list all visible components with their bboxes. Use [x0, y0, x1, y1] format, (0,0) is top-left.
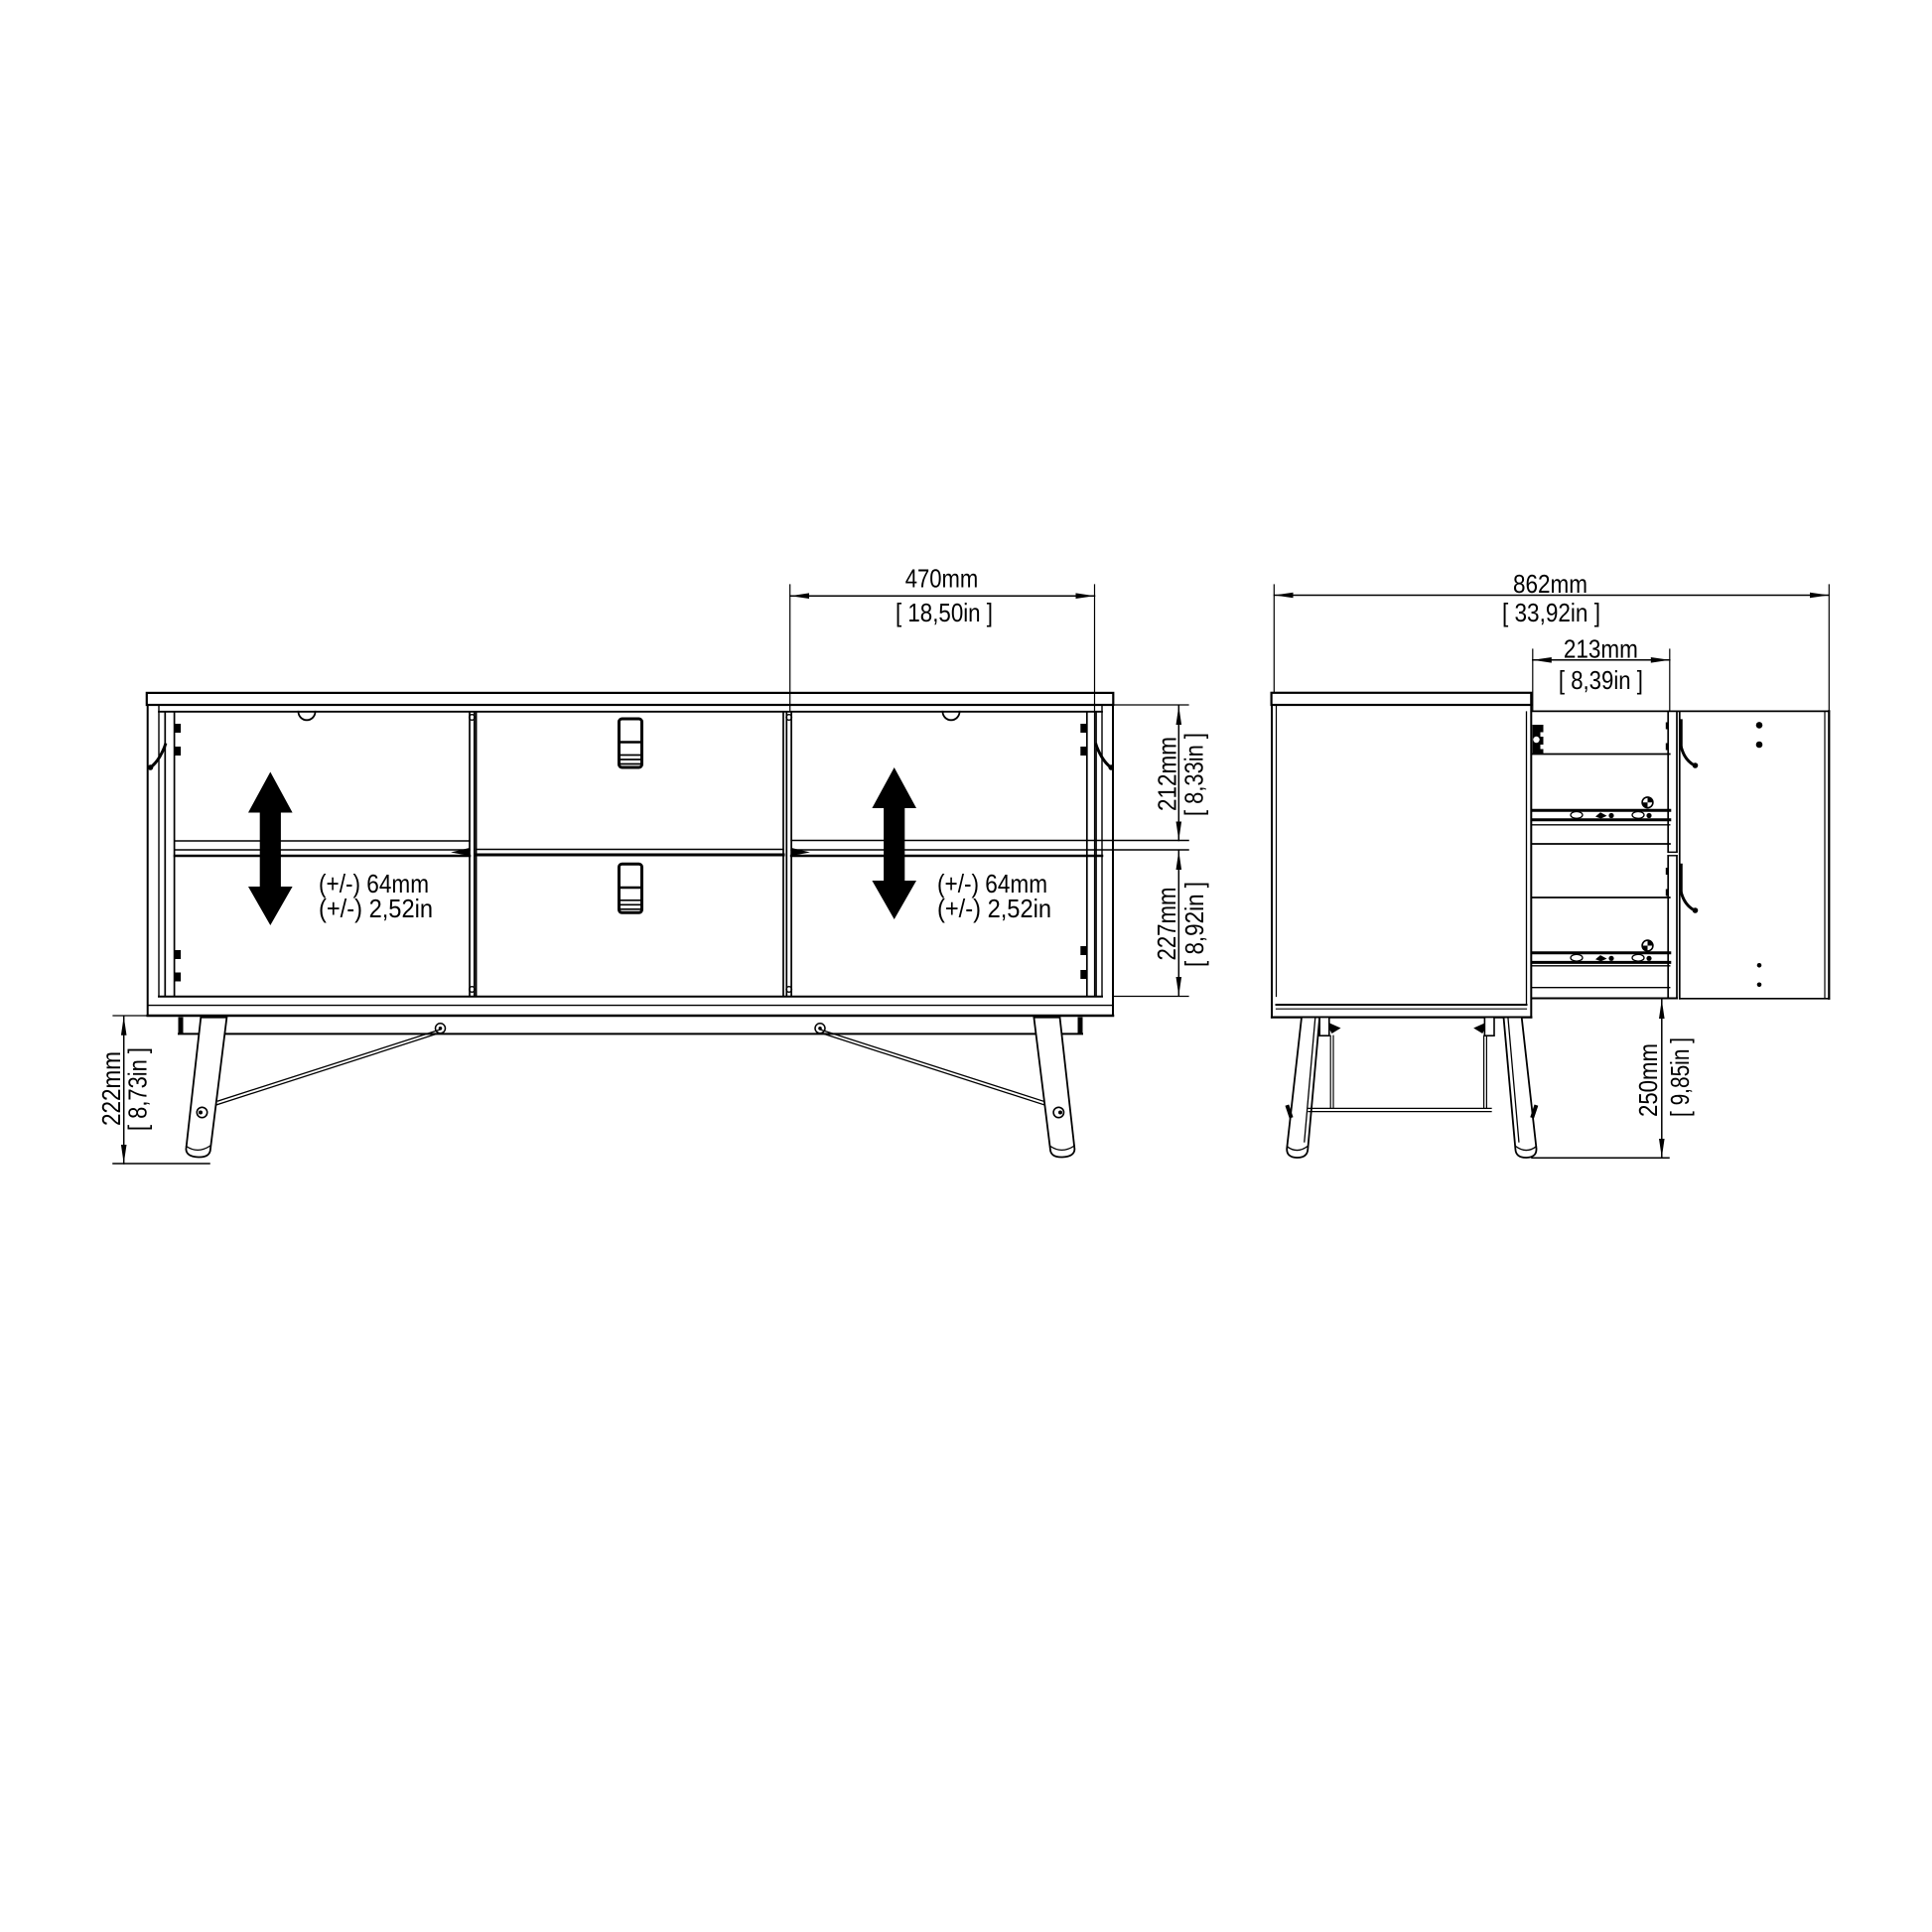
svg-text:862mm: 862mm	[1513, 569, 1587, 599]
svg-text:227mm: 227mm	[1152, 888, 1181, 961]
svg-text:212mm: 212mm	[1153, 737, 1182, 811]
svg-text:[ 33,92in ]: [ 33,92in ]	[1502, 598, 1600, 627]
svg-text:470mm: 470mm	[905, 564, 979, 594]
svg-text:[ 8,39in ]: [ 8,39in ]	[1559, 665, 1643, 695]
svg-text:[ 9,85in ]: [ 9,85in ]	[1665, 1037, 1695, 1117]
svg-text:[ 18,50in ]: [ 18,50in ]	[896, 598, 993, 627]
svg-text:[ 8,73in ]: [ 8,73in ]	[123, 1047, 153, 1131]
svg-text:250mm: 250mm	[1633, 1043, 1663, 1117]
svg-text:[ 8,92in ]: [ 8,92in ]	[1179, 882, 1209, 967]
svg-text:213mm: 213mm	[1564, 634, 1638, 664]
svg-text:(+/-) 2,52in: (+/-) 2,52in	[937, 894, 1051, 923]
svg-text:(+/-) 2,52in: (+/-) 2,52in	[319, 894, 433, 923]
svg-text:[ 8,33in ]: [ 8,33in ]	[1179, 733, 1209, 816]
svg-text:222mm: 222mm	[96, 1051, 126, 1126]
